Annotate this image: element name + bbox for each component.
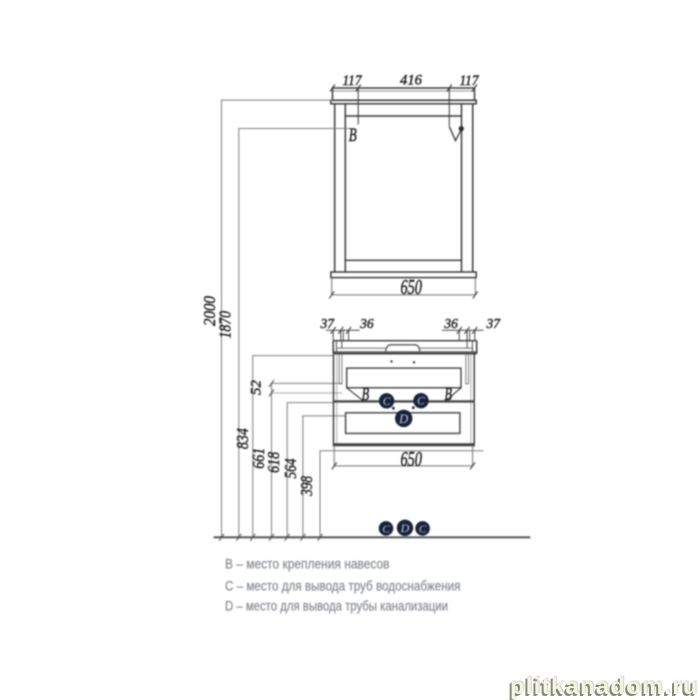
svg-text:B: B — [362, 384, 370, 404]
svg-text:B – место крепления навесов: B – место крепления навесов — [225, 556, 390, 572]
svg-text:C: C — [383, 396, 391, 408]
svg-text:650: 650 — [400, 276, 422, 299]
svg-text:36: 36 — [359, 316, 374, 331]
svg-text:37: 37 — [319, 316, 335, 331]
svg-text:398: 398 — [297, 475, 316, 496]
svg-text:37: 37 — [485, 316, 501, 331]
svg-text:416: 416 — [400, 72, 422, 89]
svg-text:1870: 1870 — [216, 311, 235, 339]
svg-text:D – место для вывода трубы кан: D – место для вывода трубы канализации — [225, 598, 448, 614]
svg-text:117: 117 — [460, 72, 480, 89]
svg-text:117: 117 — [343, 72, 363, 89]
svg-text:B: B — [349, 125, 357, 146]
svg-text:36: 36 — [443, 316, 458, 331]
svg-text:B: B — [445, 384, 453, 404]
svg-text:650: 650 — [400, 448, 422, 471]
svg-text:52: 52 — [248, 380, 264, 396]
svg-text:C – место для вывода труб водо: C – место для вывода труб водоснабжения — [225, 577, 461, 593]
svg-text:834: 834 — [233, 428, 252, 449]
svg-text:C: C — [382, 523, 390, 535]
svg-text:D: D — [398, 412, 408, 426]
svg-text:C: C — [419, 523, 427, 535]
svg-text:C: C — [417, 396, 425, 408]
svg-text:564: 564 — [281, 459, 300, 479]
svg-text:D: D — [400, 521, 410, 535]
